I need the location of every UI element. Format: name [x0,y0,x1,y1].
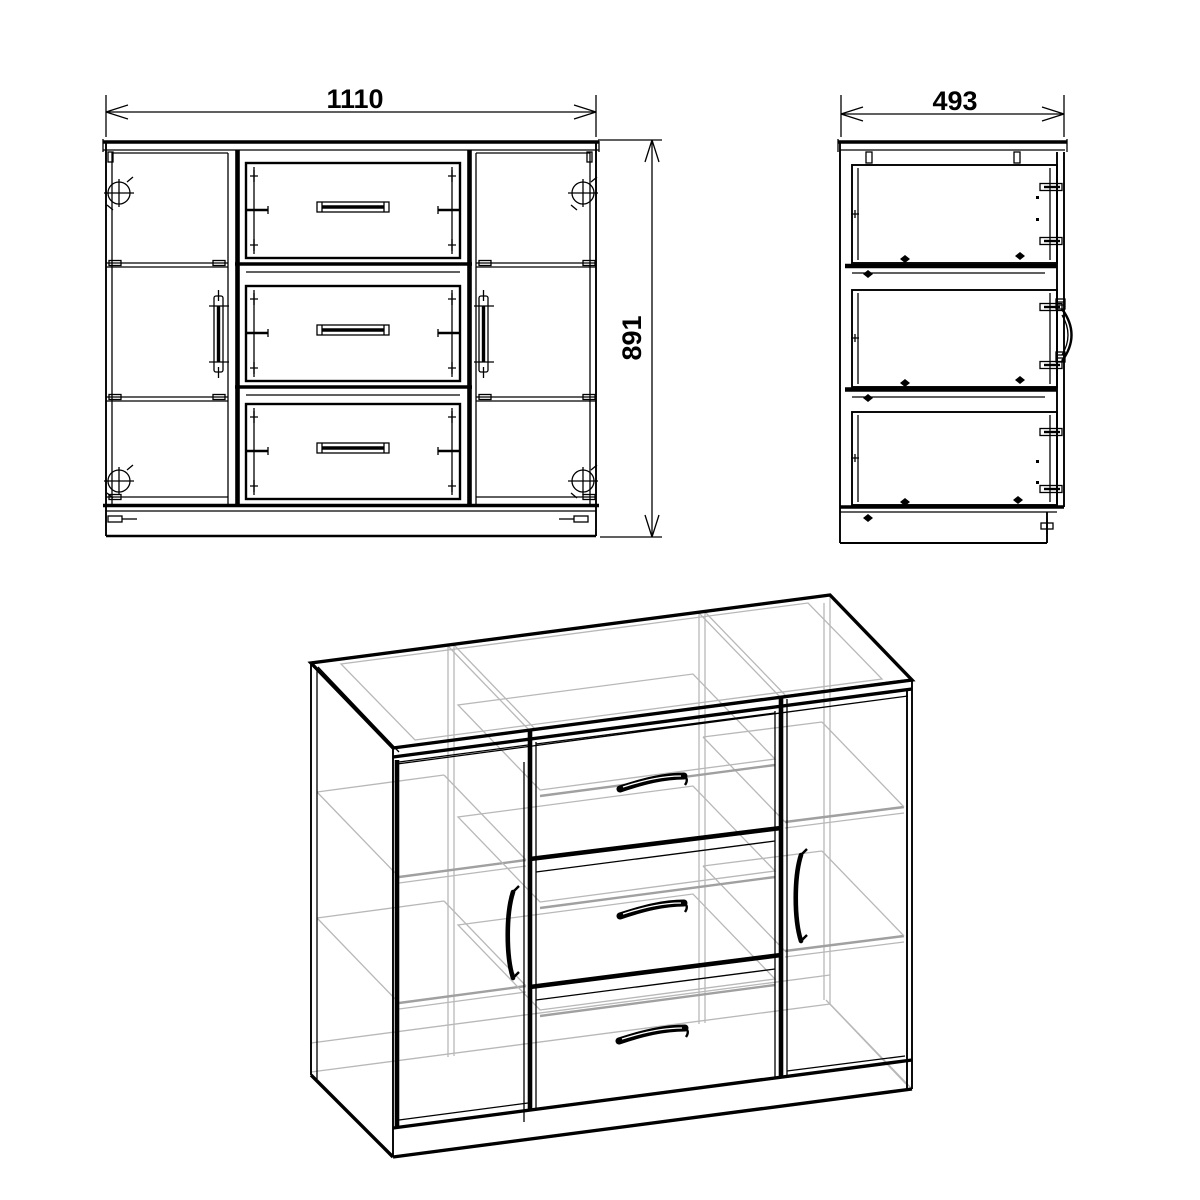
side-compartment-2 [851,290,1057,402]
front-drawer-3-handle [317,443,389,453]
side-compartment-3 [851,412,1057,522]
front-carcass [103,139,599,536]
side-fasteners [1036,184,1062,493]
front-left-door-handle [209,290,229,378]
front-height-label: 891 [617,315,647,360]
front-right-door [474,153,598,504]
side-bolt [1040,486,1062,493]
front-left-hinge-bottom [104,465,134,498]
technical-drawing-page: 1110 891 [0,0,1200,1200]
front-view: 1110 891 [103,84,662,537]
front-left-door [104,153,229,504]
front-drawer-2-handle [317,325,389,335]
front-width-dimension: 1110 [106,84,596,137]
side-view: 493 [838,86,1072,543]
side-bolt [1040,184,1062,191]
front-drawer-1 [246,163,460,258]
perspective-view [311,595,912,1157]
front-drawer-2 [246,286,460,381]
side-bolt [1040,429,1062,436]
persp-right-door-handle [796,849,807,941]
front-right-hinge-bottom [568,465,598,498]
front-height-dimension: 891 [600,140,662,537]
persp-left-door-handle [508,886,519,978]
side-depth-dimension: 493 [841,86,1064,137]
front-right-door-handle [474,290,494,378]
front-drawer-3 [246,404,460,499]
side-compartment-1 [851,165,1057,278]
side-depth-label: 493 [932,86,977,116]
front-drawer-1-handle [317,202,389,212]
persp-drawer-2-handle [620,903,687,916]
front-width-label: 1110 [326,84,383,114]
persp-hidden-lines [311,595,912,1089]
technical-drawing-canvas: 1110 891 [0,0,1200,1200]
front-left-hinge-top [104,177,134,210]
front-right-hinge-top [568,177,598,210]
side-carcass [838,139,1067,543]
side-bolt [1040,238,1062,245]
